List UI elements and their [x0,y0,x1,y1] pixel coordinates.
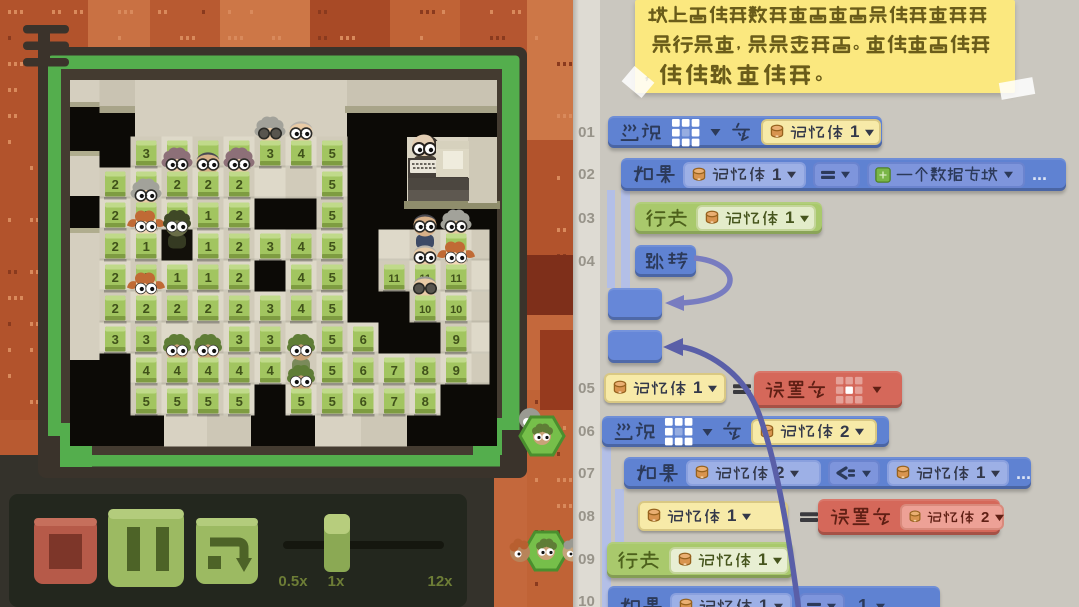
svg-text:4: 4 [267,363,275,378]
svg-text:4: 4 [205,363,213,378]
svg-text:9: 9 [453,332,460,347]
svg-text:5: 5 [329,239,336,254]
svg-text:3: 3 [267,146,274,161]
svg-text:3: 3 [112,332,119,347]
svg-text:2: 2 [236,301,243,316]
svg-text:0.5x: 0.5x [278,573,308,590]
svg-text:5: 5 [236,394,243,409]
svg-text:2: 2 [236,239,243,254]
svg-text:1: 1 [174,270,181,285]
svg-text:4: 4 [298,301,306,316]
svg-text:2: 2 [112,239,119,254]
svg-text:2: 2 [236,270,243,285]
svg-text:11: 11 [450,273,462,285]
svg-text:7: 7 [391,363,398,378]
svg-text:2: 2 [174,177,181,192]
svg-text:3: 3 [267,301,274,316]
svg-text:2: 2 [112,208,119,223]
svg-text:5: 5 [329,363,336,378]
svg-text:5: 5 [329,146,336,161]
svg-text:5: 5 [329,177,336,192]
svg-text:6: 6 [360,394,367,409]
svg-text:10: 10 [419,304,431,316]
svg-text:6: 6 [360,332,367,347]
svg-text:4: 4 [236,363,244,378]
svg-text:4: 4 [298,270,306,285]
svg-text:1: 1 [205,208,212,223]
svg-text:3: 3 [267,332,274,347]
svg-text:9: 9 [453,363,460,378]
svg-text:5: 5 [329,394,336,409]
svg-text:1: 1 [205,270,212,285]
svg-text:8: 8 [422,394,429,409]
svg-text:3: 3 [143,146,150,161]
svg-text:2: 2 [112,301,119,316]
svg-text:1: 1 [143,239,150,254]
svg-text:12x: 12x [427,573,453,590]
svg-text:5: 5 [329,270,336,285]
svg-text:4: 4 [298,146,306,161]
svg-text:7: 7 [391,394,398,409]
svg-text:5: 5 [174,394,181,409]
svg-text:4: 4 [298,239,306,254]
svg-text:2: 2 [174,301,181,316]
svg-text:8: 8 [422,363,429,378]
svg-text:5: 5 [298,394,305,409]
svg-text:2: 2 [112,270,119,285]
svg-text:10: 10 [450,304,462,316]
svg-text:2: 2 [236,208,243,223]
svg-text:1x: 1x [328,573,345,590]
svg-text:2: 2 [236,177,243,192]
svg-text:2: 2 [112,177,119,192]
svg-text:3: 3 [143,332,150,347]
svg-text:5: 5 [329,301,336,316]
svg-text:5: 5 [329,208,336,223]
svg-text:5: 5 [143,394,150,409]
svg-text:4: 4 [143,363,151,378]
svg-text:4: 4 [174,363,182,378]
svg-text:5: 5 [205,394,212,409]
svg-text:2: 2 [143,301,150,316]
svg-text:2: 2 [205,301,212,316]
svg-text:6: 6 [360,363,367,378]
svg-text:1: 1 [205,239,212,254]
svg-text:5: 5 [329,332,336,347]
svg-text:2: 2 [205,177,212,192]
svg-text:3: 3 [236,332,243,347]
svg-text:3: 3 [267,239,274,254]
svg-text:11: 11 [388,273,400,285]
